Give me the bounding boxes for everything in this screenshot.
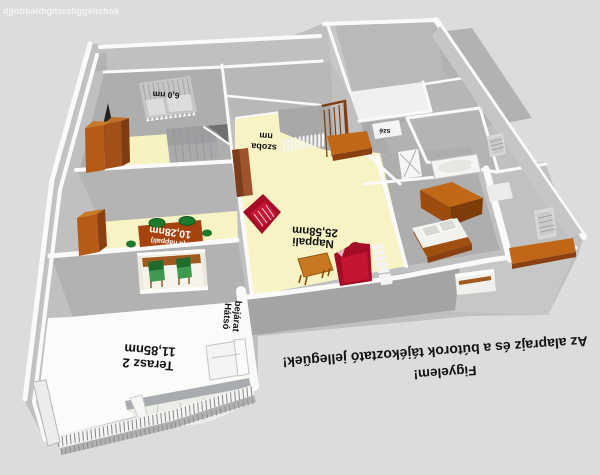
svg-text:szé: szé (379, 127, 391, 135)
svg-text:6,0 nm: 6,0 nm (152, 89, 180, 100)
svg-text:nm: nm (259, 131, 273, 142)
svg-text:szoba: szoba (250, 141, 277, 153)
svg-text:djjobbaldigitsraliggelichok: djjobbaldigitsraliggelichok (3, 6, 120, 16)
